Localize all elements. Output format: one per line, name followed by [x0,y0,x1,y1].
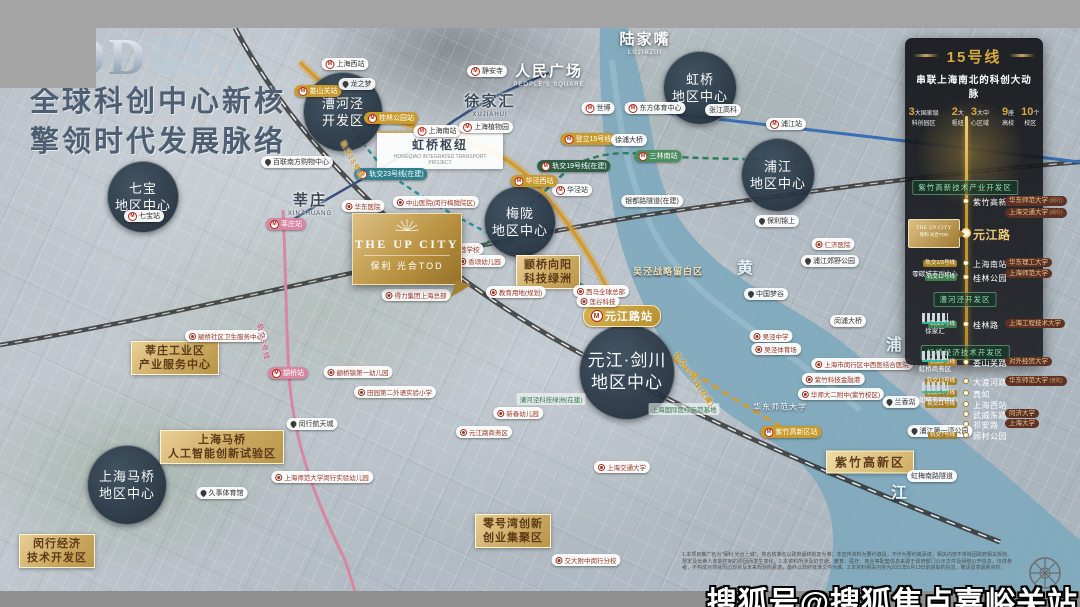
station-row-紫竹高新区: 紫竹高新区华东师范大学 (闵行)上海交通大学 (闵行) [905,196,1041,208]
metro-roundel-icon: M [299,87,308,96]
poi-dot-icon [275,474,282,481]
poi-dot-icon [346,203,353,210]
station-guilin-park: M桂林公园站 [364,112,418,124]
poi-jiaoda-affiliated-school: 交大附中闵行分校 [552,554,621,566]
metro-roundel-icon: M [586,104,595,113]
poi-shnu-kindergarten: 上海师范大学闵行实验幼儿园 [271,471,373,483]
label-yindu-tunnel: 银都路隧道(在建) [621,195,683,207]
poi-dot-icon [802,391,809,398]
header-ornament-left [913,54,939,57]
station-row-桂林公园: 桂林公园轨交12号线 [905,272,1041,284]
poi-longemont: 龙之梦 [339,78,376,90]
label-minpu-bridge: 闵浦大桥 [830,315,866,327]
location-pin-icon [804,257,812,265]
header-ornament-right [1009,54,1035,57]
location-pin-icon [289,420,297,428]
zone-zizhu-hi-tech: 紫竹高新区 [826,451,914,474]
zone-title-0: 紫竹高新技术产业开发区 [912,180,1018,195]
sunburst-icon [394,218,420,231]
river-char-pu: 浦 [886,331,902,355]
zone-title-5: 漕河泾开发区 [934,292,997,307]
station-shanghai-west: M上海西站 [322,58,369,70]
line19-under-construction: M轨交19号线(在建) [537,160,610,172]
station-row-上海南站: 上海南站轨交1/3号线华东理工大学上海师范大学零碳城市副中心 [905,258,1041,270]
station-huajing-west: M华泾西站 [511,175,558,187]
poi-education-land: 教育用地(规划) [486,286,546,298]
poi-zizhu-fintech-port: 紫竹科技金融港 [802,373,865,385]
poi-china-dream-valley: 中国梦谷 [744,288,788,300]
poi-poly-jinshang: 保利锦上 [755,215,799,227]
metro-roundel-icon: M [565,135,574,144]
label-hongmei-tunnel: 虹梅南路隧道 [907,470,957,482]
metro-roundel-icon: M [368,114,377,123]
metro-roundel-icon: M [541,162,550,171]
circle-maqiao-center: 上海马桥地区中心 [87,445,167,525]
poi-minhang-space-city: 闵行航天城 [287,418,338,430]
poi-dot-icon [581,298,588,305]
metro-roundel-icon: M [591,310,603,322]
label-wujing-reserved-area: 吴泾战略留白区 [633,265,703,278]
poi-dot-icon [490,289,497,296]
poi-pujiang-country-park: 浦江郊野公园 [801,255,859,267]
poi-dot-icon [816,241,823,248]
poi-bailian-south: 百联南方购物中心 [261,156,333,168]
poi-dot-icon [755,346,762,353]
circle-pujiang-center: 浦江地区中心 [741,138,815,212]
label-xinzhuang: 莘庄XINZHUANG [288,189,332,217]
the-upcity-logo: THEUPCITY [152,36,251,76]
poi-deli-hq: 得力集团上海总部 [382,289,451,301]
station-pujiang: M浦江站 [766,118,806,130]
label-xupu-bridge: 徐浦大桥 [611,134,647,146]
zone-zhuanqiao-xiangyang: 颛桥向阳科技绿洲 [516,255,580,289]
metro-roundel-icon: M [272,369,281,378]
poi-dot-icon [598,464,605,471]
zone-xinzhuang-industrial: 莘庄工业区产业服务中心 [131,341,219,375]
metro-roundel-icon: M [639,152,648,161]
metro-roundel-icon: M [471,67,480,76]
metro-roundel-icon: M [128,212,137,221]
poi-renji-hospital: 仁济医院 [812,238,855,250]
poi-dot-icon [397,199,404,206]
line15-info-panel: 15号线 串联上海南北的科创大动脉 3大国家级科创园区2大枢纽3大中心区域9座高… [905,38,1043,365]
river-char-huang: 黄 [737,254,753,278]
circle-meilong-center: 梅陇地区中心 [484,186,556,258]
project-logo-en: THE UP CITY [353,237,461,252]
station-loushanguan: M娄山关站 [295,85,342,97]
location-pin-icon [199,489,207,497]
label-peoples-square: 人民广场PEOPLE'S SQUARE [513,60,584,88]
station-yuanjiang-road: M元江路站 [583,305,661,327]
poi-zhongshan-hospital: 中山医院(闵行梅陇院区) [393,196,479,208]
label-caohejing-tech-oasis: 漕河泾科技绿洲(在建) [517,393,586,405]
station-row-娄山关路: 娄山关路轨交2号线对外经贸大学虹桥商务区 [905,357,1041,369]
label-xujiahui: 徐家汇XUJIAHUI [464,90,515,118]
top-gray-bar [0,0,1080,28]
project-logo-cn: 保利 光合TOD [364,255,450,272]
poi-tianyuan-school: 田园第二外语实验小学 [354,386,436,398]
sohu-watermark: 搜狐号@搜狐焦点嘉峪关站 [707,578,1078,607]
station-row-桂林路: 桂林路轨交9号线上海工程技术大学徐家汇 [905,319,1041,331]
location-pin-icon [747,290,755,298]
metro-roundel-icon: M [765,428,774,437]
poi-zhuanqiao-health-center: 颛桥社区卫生服务中心 [185,330,267,342]
panel-project-logo: THE UP CITY保利 光合TOD [908,219,960,248]
poi-dot-icon [189,333,196,340]
station-xinzhuang: M莘庄站 [266,218,306,230]
poi-minhang-tcm-hospital: 上海市闵行区中西医结合医院 [811,358,913,370]
panel-title: 15号线 [947,49,1002,66]
metro-roundel-icon: M [556,186,565,195]
poi-dot-icon [806,376,813,383]
poi-wujing-middle-school: 吴泾中学 [750,330,793,342]
poi-zhuanqiao-first-kindergarten: 颛桥镇第一幼儿园 [324,366,393,378]
metro-roundel-icon: M [326,60,335,69]
poi-xinchun-kindergarten: 新春幼儿园 [493,407,543,419]
station-jingansi: M静安寺 [467,65,507,77]
station-oriental-sports-center: M东方体育中心 [625,102,686,114]
label-ecnu: 华东师范大学 [753,402,807,413]
zone-lingang-zero-bay: 零号湾创新创业集聚区 [475,514,551,548]
poi-dot-icon [754,333,761,340]
poi-dot-icon [556,557,563,564]
station-huajing: M华泾站 [552,184,592,196]
callout-line15: M登立15号线 [561,133,616,145]
poi-yuanjiang-business-district: 元江路商务区 [456,426,512,438]
poi-liangu-tech: 莲谷科技 [577,295,620,307]
station-sanlin-south: M三林南站 [635,150,682,162]
zone-maqiao-ai: 上海马桥人工智能创新试验区 [160,430,284,464]
metro-roundel-icon: M [770,120,779,129]
circle-qibao-center: 七宝地区中心 [107,161,179,233]
metro-roundel-icon: M [515,177,524,186]
station-botanical-garden: M上海植物园 [459,121,513,133]
river-char-jiang: 江 [891,479,907,503]
station-row-元江路: 元江路THE UP CITY保利 光合TOD [905,228,1041,240]
zone-minhang-etdz: 闵行经济技术开发区 [19,534,95,568]
metro-line-5 [283,210,360,607]
label-lujiazui: 陆家嘴LUJIAZUI [619,28,670,56]
disclaimer-text: 1.本项目推广名为“保利·光合上城”，地名核准名以政府最终批复为准；本宣传资料为… [682,552,1012,572]
metro-roundel-icon: M [418,127,427,136]
station-list: 紫竹高新技术产业开发区紫竹高新区华东师范大学 (闵行)上海交通大学 (闵行)元江… [905,108,1043,365]
station-expo: M世博 [582,102,615,114]
poi-dot-icon [386,292,393,299]
project-logo-card: THE UP CITY 保利 光合TOD [352,213,462,285]
poi-xiangsong-kindergarten: 香颂幼儿园 [455,255,505,267]
poi-dot-icon [815,361,822,368]
location-pin-icon [264,158,272,166]
poi-dot-icon [497,410,504,417]
station-zhuanqiao: M颛桥站 [268,367,308,379]
poi-hsd-no2-school: 华师大二附中(紫竹校区) [798,388,884,400]
poi-wujing-stadium: 吴泾体育场 [751,343,801,355]
location-pin-icon [341,80,349,88]
metro-roundel-icon: M [270,220,279,229]
panel-subtitle: 串联上海南北的科创大动脉 [912,71,1036,101]
poi-dot-icon [358,389,365,396]
promo-map-image: 虹桥地区中心漕河泾开发区七宝地区中心梅陇地区中心浦江地区中心元江·剑川地区中心上… [0,0,1080,607]
poi-jiushi-stadium: 久事体育馆 [197,487,248,499]
poi-dot-icon [460,429,467,436]
station-row-顾村公园: 顾村公园轨交7号线 [905,430,1041,442]
location-pin-icon [885,398,893,406]
poi-dot-icon [328,369,335,376]
location-pin-icon [758,217,766,225]
station-qibao: M七宝站 [124,210,164,222]
station-zizhu-hi-tech: M紫竹高新区站 [761,426,822,438]
poi-sjtu: 上海交通大学 [594,461,650,473]
metro-roundel-icon: M [463,123,472,132]
station-shanghai-south: M上海南站 [414,125,461,137]
poi-dot-icon [577,288,584,295]
label-zhangjiang-hi-tech: 张江高科 [705,104,741,116]
metro-roundel-icon: M [629,104,638,113]
poi-huadong-hospital: 华东医院 [342,200,385,212]
top-left-gray-block [0,28,96,88]
